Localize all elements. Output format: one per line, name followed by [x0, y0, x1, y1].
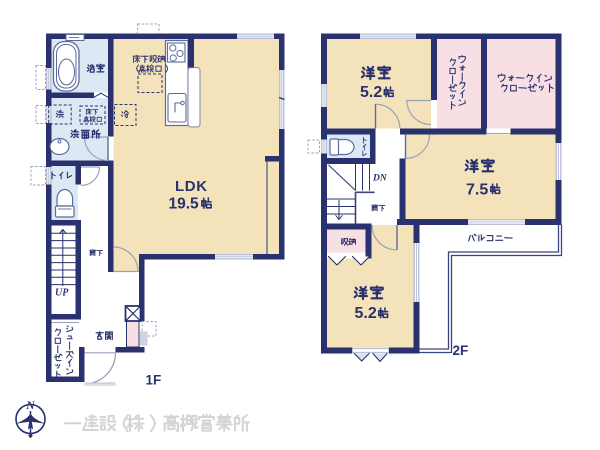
- svg-text:19.5: 19.5: [169, 196, 200, 213]
- svg-text:DN: DN: [372, 174, 388, 184]
- svg-text:5.2: 5.2: [355, 305, 377, 322]
- svg-text:LDK: LDK: [175, 178, 208, 195]
- svg-text:N: N: [25, 398, 36, 412]
- svg-text:7.5: 7.5: [466, 182, 488, 199]
- svg-text:UP: UP: [55, 288, 69, 299]
- svg-text:2F: 2F: [453, 343, 469, 358]
- svg-text:1F: 1F: [146, 373, 162, 388]
- svg-text:5.2: 5.2: [360, 84, 382, 101]
